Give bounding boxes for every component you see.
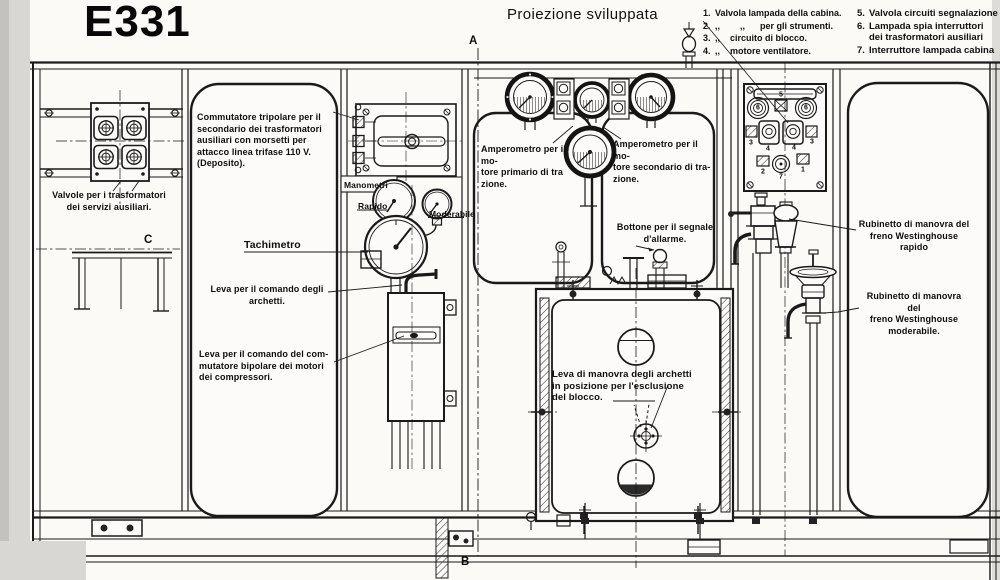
section-marker-b: B [461,556,469,568]
legend-item-4: 4.,, motore ventilatore. [703,46,855,58]
legend-column-1: 1.Valvola lampada della cabina. 2.,, ,, … [703,8,855,58]
blocco-valve-3-right [806,126,817,137]
legend-item-3: 3.,, circuito di blocco. [703,33,855,45]
legend-item-7: 7.Interruttore lampada cabina [857,45,1000,56]
section-marker-c: C [144,234,152,246]
bench-table [36,249,180,311]
label-leva-commutatore-bipolare: Leva per il comando del com- mutatore bi… [199,349,341,384]
legend-item-6: 6.Lampada spia interruttori dei trasform… [857,21,1000,43]
panel-number-6-left: 6 [756,105,760,112]
legend-valve-glyph [683,22,696,68]
legend-item-1: 1.Valvola lampada della cabina. [703,8,855,20]
label-rubinetto-rapido: Rubinetto di manovra del freno Westingho… [855,219,973,254]
label-manometri: Manometri [344,180,388,192]
label-tachimetro: Tachimetro [244,240,301,252]
label-leva-archetti: Leva per il comando degli archetti. [206,284,328,307]
instrument-valve-2 [757,156,769,166]
page-title: E331 [84,0,191,44]
panel-number-2: 2 [761,169,765,176]
label-amperometro-primario: Amperometro per il mo- tore primario di … [481,144,577,190]
commutatore-panel [333,92,462,182]
label-amperometro-secondario: Amperometro per il mo- tore secondario d… [613,139,713,185]
label-moderabile: Moderabile [429,209,475,221]
auxiliary-valve-plate [40,90,186,205]
diagram-linework [0,0,1000,580]
westinghouse-rapid-brake-valve [728,193,856,515]
panel-number-4-right: 4 [792,145,796,152]
label-rapido: Rapido [358,201,387,213]
label-valvole-trasformatori: Valvole per i trasformatori dei servizi … [36,190,182,213]
panel-number-1: 1 [801,167,805,174]
blocco-valve-3-left [746,126,757,137]
panel-number-7: 7 [779,174,783,181]
panel-number-4-left: 4 [766,146,770,153]
lamp-valve-fixture-right [609,79,629,119]
legend-item-5: 5.Valvola circuiti segnalazione [857,8,1000,19]
panel-number-3-right: 3 [810,139,814,146]
label-bottone-allarme: Bottone per il segnale d'allarme. [610,222,720,245]
panel-number-6-right: 6 [804,105,808,112]
legend-column-2: 5.Valvola circuiti segnalazione 6.Lampad… [857,8,1000,58]
e331-cab-diagram: E331 Proiezione sviluppata 1.Valvola lam… [0,0,1000,580]
section-marker-a: A [469,35,477,47]
drawing-subtitle: Proiezione sviluppata [507,6,658,23]
legend-item-2: 2.,, ,, per gli strumenti. [703,21,855,33]
lamp-valve-fixture-left [554,79,574,119]
cabin-lamp-valve-1 [797,154,809,164]
panel-number-5: 5 [779,92,783,99]
panel-number-3-left: 3 [749,140,753,147]
blocco-cabinet [528,258,744,568]
scan-patch [0,541,86,580]
label-leva-manovra-archetti: Leva di manovra degli archetti in posizi… [552,369,700,404]
label-commutatore-tripolare: Commutatore tripolare per il secondario … [197,112,334,170]
label-rubinetto-moderabile: Rubinetto di manovra del freno Westingho… [861,291,967,337]
